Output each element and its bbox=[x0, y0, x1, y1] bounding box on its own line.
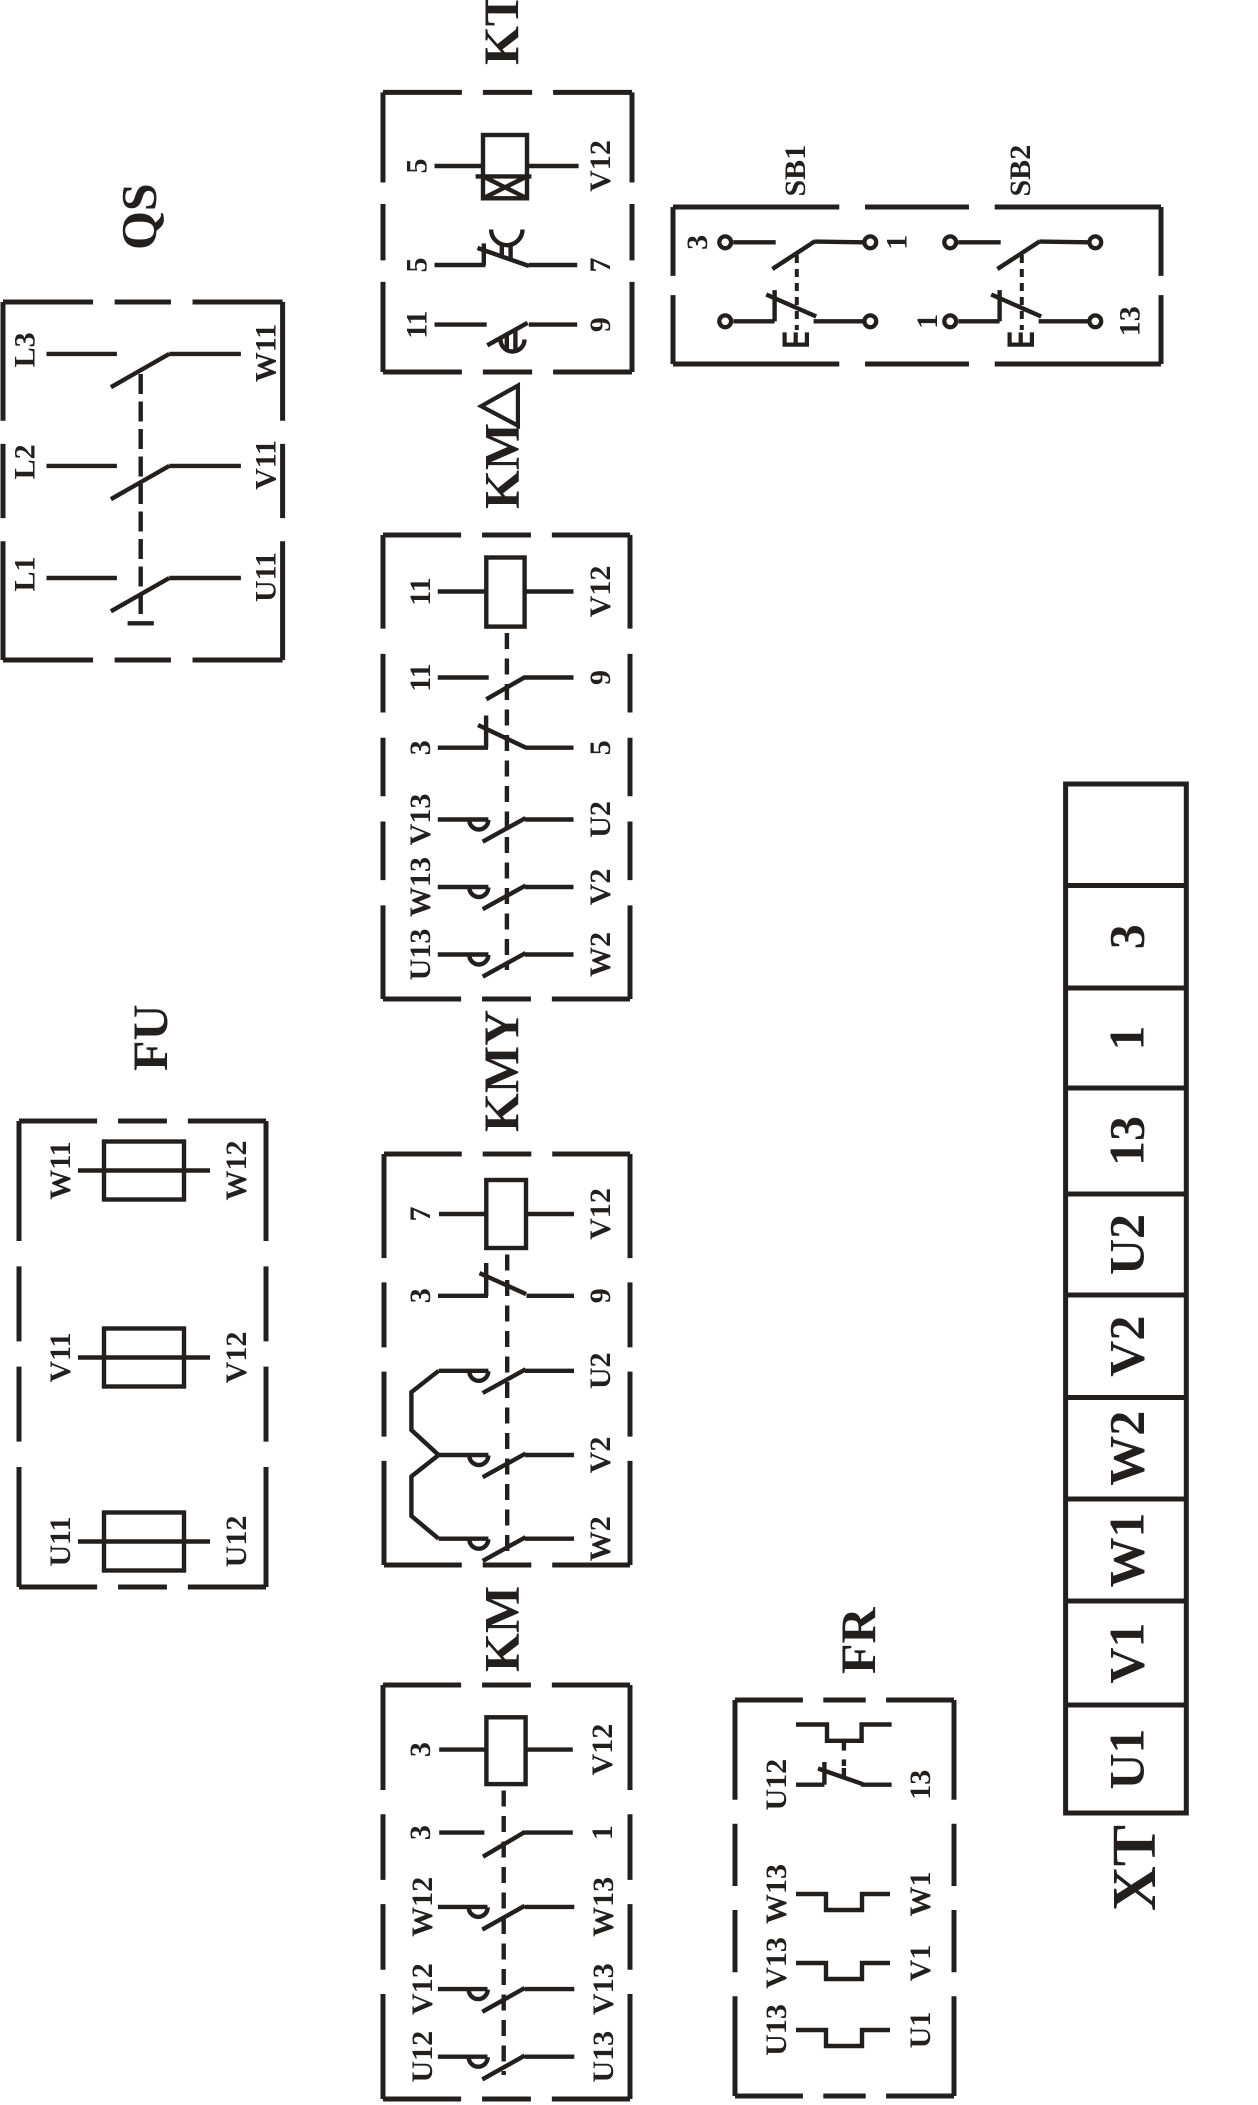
svg-text:L3: L3 bbox=[9, 332, 42, 367]
svg-text:5: 5 bbox=[401, 159, 434, 174]
svg-text:3: 3 bbox=[404, 1742, 437, 1757]
svg-text:U2: U2 bbox=[584, 1352, 617, 1389]
svg-text:V1: V1 bbox=[904, 1945, 937, 1982]
svg-text:W1: W1 bbox=[1098, 1513, 1154, 1588]
svg-text:V2: V2 bbox=[584, 869, 617, 906]
svg-text:V12: V12 bbox=[584, 566, 617, 618]
svg-text:V2: V2 bbox=[584, 1437, 617, 1474]
svg-text:V12: V12 bbox=[584, 140, 617, 192]
svg-text:W11: W11 bbox=[44, 1141, 77, 1199]
svg-text:5: 5 bbox=[584, 740, 617, 755]
svg-text:1: 1 bbox=[911, 314, 944, 329]
svg-text:V13: V13 bbox=[404, 794, 437, 846]
svg-text:1: 1 bbox=[586, 1825, 619, 1840]
svg-text:W11: W11 bbox=[249, 324, 282, 382]
svg-text:FU: FU bbox=[122, 1004, 178, 1071]
svg-text:U1: U1 bbox=[904, 2012, 937, 2049]
svg-text:KM: KM bbox=[474, 1586, 530, 1672]
svg-text:3: 3 bbox=[1098, 924, 1154, 949]
svg-text:U11: U11 bbox=[44, 1516, 77, 1566]
svg-text:W2: W2 bbox=[584, 1516, 617, 1561]
svg-text:V2: V2 bbox=[1098, 1316, 1154, 1377]
svg-text:L2: L2 bbox=[9, 444, 42, 479]
svg-text:U12: U12 bbox=[406, 2031, 439, 2083]
svg-text:W13: W13 bbox=[587, 1877, 620, 1937]
svg-text:W1: W1 bbox=[904, 1872, 937, 1917]
svg-text:V13: V13 bbox=[587, 1963, 620, 2015]
svg-text:W2: W2 bbox=[584, 932, 617, 977]
svg-text:11: 11 bbox=[404, 663, 437, 691]
svg-text:13: 13 bbox=[1113, 306, 1146, 336]
svg-text:9: 9 bbox=[584, 670, 617, 685]
svg-text:3: 3 bbox=[681, 235, 714, 250]
svg-text:XT: XT bbox=[1101, 1825, 1169, 1911]
svg-text:U11: U11 bbox=[249, 552, 282, 602]
svg-text:V11: V11 bbox=[44, 1332, 77, 1382]
svg-text:3: 3 bbox=[404, 740, 437, 755]
svg-text:KM: KM bbox=[474, 423, 530, 509]
svg-text:KMY: KMY bbox=[473, 1010, 529, 1132]
svg-text:SB1: SB1 bbox=[779, 145, 812, 197]
svg-text:V12: V12 bbox=[406, 1963, 439, 2015]
svg-text:9: 9 bbox=[584, 1288, 617, 1303]
svg-text:U13: U13 bbox=[760, 2004, 793, 2056]
svg-text:SB2: SB2 bbox=[1004, 145, 1037, 197]
svg-text:W2: W2 bbox=[1098, 1411, 1154, 1486]
svg-text:3: 3 bbox=[404, 1288, 437, 1303]
svg-text:QS: QS bbox=[111, 183, 167, 250]
svg-text:U13: U13 bbox=[587, 2031, 620, 2083]
svg-text:W13: W13 bbox=[404, 857, 437, 917]
svg-text:1: 1 bbox=[880, 235, 913, 250]
svg-text:7: 7 bbox=[584, 258, 617, 273]
svg-text:U2: U2 bbox=[1098, 1214, 1154, 1275]
svg-text:V12: V12 bbox=[220, 1332, 253, 1384]
svg-text:W12: W12 bbox=[406, 1877, 439, 1937]
svg-text:3: 3 bbox=[404, 1825, 437, 1840]
svg-text:11: 11 bbox=[401, 310, 434, 338]
svg-text:U1: U1 bbox=[1098, 1728, 1154, 1789]
svg-text:U12: U12 bbox=[220, 1516, 253, 1568]
svg-text:L1: L1 bbox=[9, 556, 42, 591]
svg-text:1: 1 bbox=[1098, 1026, 1154, 1051]
svg-text:V13: V13 bbox=[760, 1937, 793, 1989]
svg-text:U2: U2 bbox=[584, 801, 617, 838]
svg-text:KT: KT bbox=[473, 0, 529, 65]
svg-text:13: 13 bbox=[1098, 1116, 1154, 1166]
svg-text:V11: V11 bbox=[249, 440, 282, 490]
svg-text:9: 9 bbox=[584, 317, 617, 332]
svg-text:W13: W13 bbox=[760, 1864, 793, 1924]
svg-text:V12: V12 bbox=[586, 1724, 619, 1776]
svg-text:U12: U12 bbox=[760, 1759, 793, 1811]
svg-text:W12: W12 bbox=[220, 1141, 253, 1201]
svg-text:FR: FR bbox=[830, 1606, 886, 1674]
svg-text:5: 5 bbox=[401, 258, 434, 273]
svg-text:11: 11 bbox=[404, 577, 437, 605]
svg-text:7: 7 bbox=[404, 1207, 437, 1222]
svg-text:13: 13 bbox=[904, 1770, 937, 1800]
svg-text:V1: V1 bbox=[1098, 1622, 1154, 1683]
svg-text:U13: U13 bbox=[404, 929, 437, 981]
svg-text:V12: V12 bbox=[584, 1188, 617, 1240]
